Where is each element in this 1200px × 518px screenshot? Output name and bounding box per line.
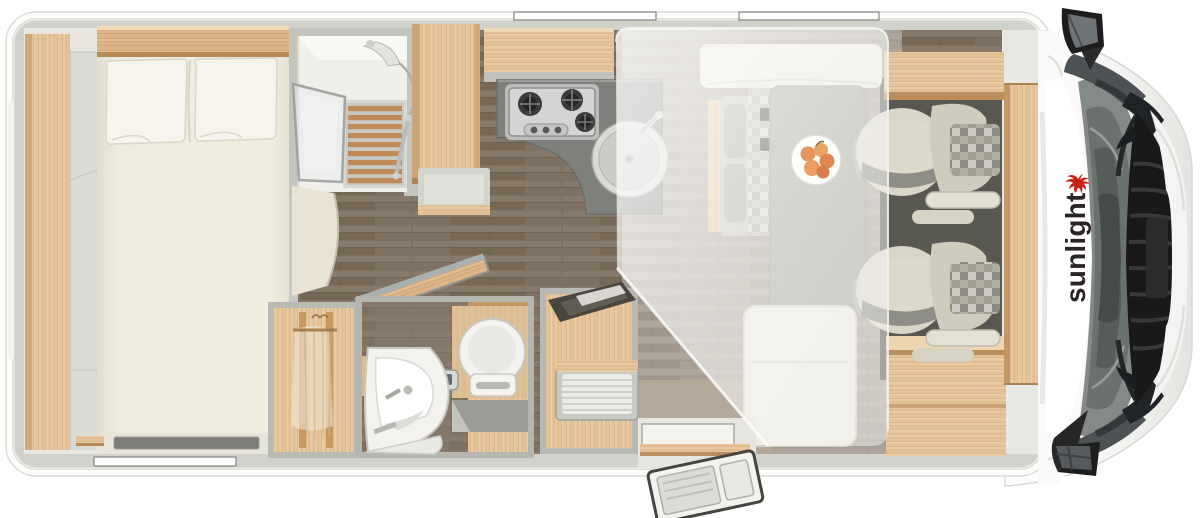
svg-text:sunlight: sunlight <box>1060 193 1091 303</box>
